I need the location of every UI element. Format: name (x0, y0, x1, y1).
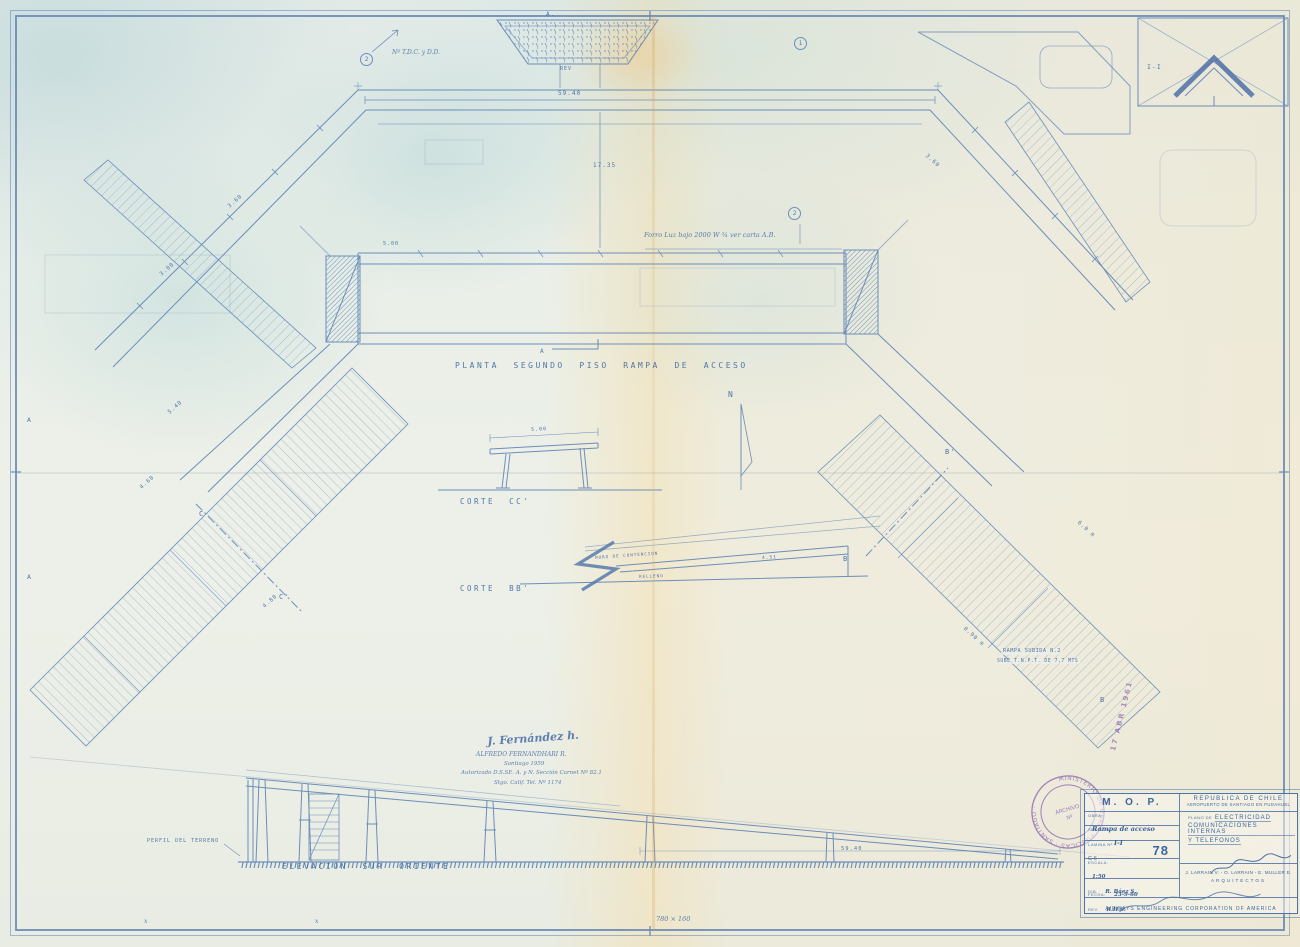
annotation-46: 780 × 160 (656, 916, 690, 923)
annotation-24: MURO DE CONTENCION (595, 552, 659, 561)
lamina-number: 78 (1153, 843, 1169, 858)
seccion-label: SECCION: (1088, 827, 1176, 832)
annotation-33: B (1100, 697, 1105, 705)
plano-line-1: ELECTRICIDAD (1215, 815, 1271, 822)
annotation-7: 17.35 (593, 163, 616, 170)
annotation-35: SUBE T.N.P.T. DE 7,7 MTS (995, 659, 1080, 664)
annotation-28: C' (279, 594, 289, 602)
airways-cell: AIRWAYS ENGINEERING CORPORATION OF AMERI… (1085, 897, 1297, 913)
title-block: M. O. P. REPUBLICA DE CHILE AEROPUERTO D… (1084, 793, 1298, 914)
annotation-1: REV (560, 67, 572, 73)
annotation-39: 59.40 (841, 846, 863, 852)
escala-label: ESCALA: (1088, 860, 1176, 865)
annotation-8: 5.00 (383, 242, 399, 248)
annotation-15: 3.60 (924, 153, 941, 169)
annotation-19: A (540, 349, 545, 356)
title-block-mop: M. O. P. (1085, 794, 1180, 812)
annotation-18: PLANTA SEGUNDO PISO RAMPA DE ACCESO (455, 362, 748, 371)
obra-cell: OBRA: Rampa de acceso (1085, 812, 1180, 826)
architects-names: J. LARRAIN V. - O. LARRAIN - E. MULLER E… (1180, 870, 1297, 875)
annotation-42: Santiago 1959 (504, 761, 544, 767)
annotation-29: A (27, 417, 32, 424)
title-block-header: REPUBLICA DE CHILE AEROPUERTO DE SANTIAG… (1180, 794, 1297, 812)
annotation-32: B (843, 556, 848, 564)
dib-value: R. Báez S. (1105, 889, 1136, 895)
annotation-16: 6.0 m (1076, 520, 1096, 539)
annotation-12: 5.40 (167, 399, 184, 415)
annotation-47: x (144, 919, 147, 926)
escala-fecha-cell: ESCALA:1:50 FECHA: 23-9-60 (1085, 859, 1180, 879)
blueprint-sheet: A.REVNº T.D.C. y D.D.21259.4017.355.00Fo… (0, 0, 1300, 947)
airport-name: AEROPUERTO DE SANTIAGO EN PUDAHUEL (1180, 802, 1297, 807)
architects-cell: J. LARRAIN V. - O. LARRAIN - E. MULLER E… (1180, 863, 1297, 897)
obra-label: OBRA: (1088, 813, 1176, 818)
annotation-4: 1 (794, 37, 807, 50)
annotation-5: 2 (788, 207, 801, 220)
annotation-2: Nº T.D.C. y D.D. (392, 50, 440, 57)
annotation-11: 3.00 (159, 261, 176, 277)
annotation-10: 3.60 (227, 193, 244, 209)
annotation-9: Forro Luz bajo 2000 W ¾ ver carta A.B. (644, 232, 775, 239)
dib-rev-cell: DIB. R. Báez S. REV. R.H.S. (1085, 879, 1180, 897)
annotation-37: PERFIL DEL TERRENO (147, 839, 219, 845)
annotation-45: 17 ABR 1961 (1110, 680, 1135, 752)
annotation-38: ELEVACIÓN SUR ORIENTE (282, 863, 450, 872)
plano-line-3: Y TELEFONOS (1188, 838, 1241, 845)
annotation-48: x (315, 919, 318, 926)
plano-line-2: COMUNICACIONES INTERNAS (1188, 823, 1295, 836)
annotation-43: Autorizado D.S.SE. A. y N. Sección Carne… (461, 770, 602, 776)
annotation-21: 5.00 (531, 427, 547, 433)
annotation-44: Stgo. Calif. Tel. Nº 1174 (494, 780, 561, 786)
annotation-25: RELLENO (639, 574, 664, 579)
annotation-40: J. Fernández h. (487, 730, 579, 748)
architects-title: ARQUITECTOS (1180, 878, 1297, 883)
annotation-22: N (728, 391, 734, 400)
plano-label: PLANO DE (1188, 815, 1212, 820)
annotation-13: 4.60 (139, 474, 156, 490)
annotation-0: A. (546, 12, 555, 19)
annotation-27: C (199, 511, 204, 519)
seccion-cell: SECCION: I-I (1085, 826, 1180, 841)
annotation-36: I-I (1147, 64, 1162, 71)
annotation-17: 0.90 m (962, 626, 985, 648)
lamina-cell: LAMINA Nº C-6 78 (1085, 841, 1180, 859)
stamp-center-line2: Nº (1066, 814, 1074, 822)
annotation-41: ALFREDO FERNANDHARI R. (476, 752, 567, 759)
firm-name: AIRWAYS ENGINEERING CORPORATION OF AMERI… (1105, 906, 1276, 912)
annotation-23: CORTE BB' (460, 585, 530, 593)
annotation-34: RAMPA SUBIDA N.2 (1001, 649, 1063, 655)
plano-cell: PLANO DE ELECTRICIDAD COMUNICACIONES INT… (1180, 812, 1297, 863)
annotation-31: B' (945, 449, 955, 457)
annotation-20: CORTE CC' (460, 498, 530, 506)
annotation-30: A (27, 574, 32, 581)
dib-label: DIB. (1088, 889, 1098, 894)
annotation-6: 59.40 (558, 91, 581, 98)
annotation-14: 4.80 (262, 593, 279, 609)
annotation-3: 2 (360, 53, 373, 66)
annotation-26: 4.51 (762, 556, 777, 562)
